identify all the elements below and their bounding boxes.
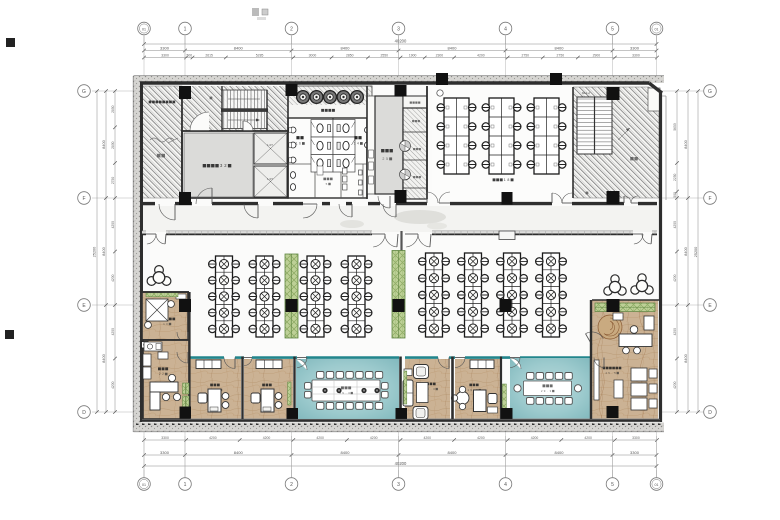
svg-text:3300: 3300 — [632, 436, 640, 440]
svg-text:4200: 4200 — [673, 381, 677, 389]
svg-text:8400: 8400 — [341, 450, 351, 455]
svg-text:8400: 8400 — [684, 140, 688, 148]
svg-text:4200: 4200 — [111, 381, 115, 389]
svg-text:8400: 8400 — [555, 45, 565, 50]
svg-text:ML1-2: ML1-2 — [582, 91, 590, 95]
svg-text:1.0T: 1.0T — [267, 143, 273, 147]
svg-text:2800: 2800 — [111, 141, 115, 149]
svg-text:5: 5 — [611, 482, 614, 488]
svg-text:4200: 4200 — [209, 436, 217, 440]
svg-text:8400: 8400 — [234, 45, 244, 50]
svg-text:4200: 4200 — [673, 328, 677, 336]
svg-text:3300: 3300 — [160, 45, 170, 50]
svg-text:2850: 2850 — [111, 105, 115, 113]
svg-text:3300: 3300 — [160, 450, 170, 455]
svg-text:4200: 4200 — [477, 436, 485, 440]
svg-text:2750: 2750 — [521, 53, 529, 57]
svg-text:4200: 4200 — [111, 274, 115, 282]
svg-text:25200: 25200 — [694, 247, 698, 258]
svg-text:1900: 1900 — [409, 53, 417, 57]
svg-text:40200: 40200 — [395, 39, 407, 44]
svg-text:8400: 8400 — [684, 354, 688, 362]
svg-text:01: 01 — [655, 483, 659, 487]
svg-text:5285: 5285 — [256, 53, 264, 57]
svg-text:2900: 2900 — [593, 53, 601, 57]
svg-text:8400: 8400 — [684, 247, 688, 255]
svg-text:5: 5 — [611, 27, 614, 33]
svg-text:2850: 2850 — [346, 53, 354, 57]
svg-text:2550: 2550 — [380, 53, 388, 57]
svg-text:3300: 3300 — [161, 53, 169, 57]
svg-text:8400: 8400 — [448, 450, 458, 455]
svg-text:2300: 2300 — [436, 53, 444, 57]
svg-text:4200: 4200 — [263, 436, 271, 440]
svg-text:4200: 4200 — [111, 221, 115, 229]
svg-text:1: 1 — [296, 142, 298, 146]
svg-text:4200: 4200 — [111, 328, 115, 336]
svg-text:4200: 4200 — [477, 53, 485, 57]
svg-text:1.0T: 1.0T — [267, 177, 273, 181]
svg-text:5: 5 — [386, 157, 388, 161]
svg-text:3300: 3300 — [632, 53, 640, 57]
svg-text:3300: 3300 — [161, 436, 169, 440]
svg-text:8400: 8400 — [102, 140, 106, 148]
svg-text:4: 4 — [504, 27, 507, 33]
svg-text:4200: 4200 — [673, 274, 677, 282]
svg-text:2: 2 — [290, 27, 293, 33]
svg-text:4200: 4200 — [424, 436, 432, 440]
svg-text:25200: 25200 — [93, 247, 97, 258]
svg-text:4200: 4200 — [673, 221, 677, 229]
svg-text:2750: 2750 — [557, 53, 565, 57]
svg-text:3: 3 — [397, 482, 400, 488]
svg-text:8400: 8400 — [102, 247, 106, 255]
svg-text:3300: 3300 — [630, 450, 640, 455]
svg-text:F: F — [82, 196, 85, 202]
svg-text:8400: 8400 — [448, 45, 458, 50]
svg-text:5650: 5650 — [673, 123, 677, 131]
svg-text:2250: 2250 — [673, 173, 677, 181]
svg-text:8: 8 — [507, 178, 509, 182]
svg-text:4200: 4200 — [316, 436, 324, 440]
svg-text:500: 500 — [673, 192, 677, 198]
svg-text:2: 2 — [290, 482, 293, 488]
svg-text:2: 2 — [159, 372, 161, 376]
svg-text:4: 4 — [357, 142, 359, 146]
svg-text:2: 2 — [162, 372, 164, 376]
svg-text:4: 4 — [504, 482, 507, 488]
svg-text:4200: 4200 — [370, 436, 378, 440]
svg-text:1: 1 — [504, 178, 506, 182]
svg-text:1: 1 — [184, 27, 187, 33]
svg-text:4200: 4200 — [531, 436, 539, 440]
svg-text:1: 1 — [184, 482, 187, 488]
svg-text:500: 500 — [186, 53, 192, 57]
svg-text:D: D — [708, 410, 712, 416]
svg-text:D: D — [82, 410, 86, 416]
svg-text:F: F — [708, 196, 711, 202]
svg-text:40200: 40200 — [395, 461, 407, 466]
svg-text:01: 01 — [655, 28, 659, 32]
svg-text:8400: 8400 — [341, 45, 351, 50]
svg-text:1: 1 — [354, 142, 356, 146]
svg-text:G: G — [82, 89, 86, 95]
svg-text:2615: 2615 — [205, 53, 213, 57]
svg-text:3300: 3300 — [630, 45, 640, 50]
svg-text:8400: 8400 — [555, 450, 565, 455]
svg-text:01: 01 — [142, 483, 146, 487]
svg-text:8400: 8400 — [102, 354, 106, 362]
svg-text:2: 2 — [382, 157, 384, 161]
svg-text:4200: 4200 — [584, 436, 592, 440]
svg-text:6: 6 — [299, 142, 301, 146]
svg-text:01: 01 — [142, 28, 146, 32]
svg-text:3000: 3000 — [309, 53, 317, 57]
svg-text:8400: 8400 — [234, 450, 244, 455]
svg-text:2750: 2750 — [111, 177, 115, 185]
svg-text:3: 3 — [397, 27, 400, 33]
svg-text:G: G — [708, 89, 712, 95]
